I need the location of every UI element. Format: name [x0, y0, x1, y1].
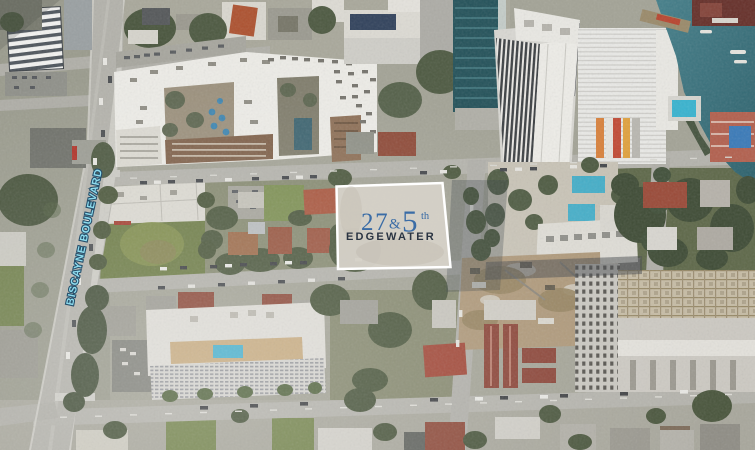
svg-text:th: th	[421, 211, 430, 222]
svg-text:EDGEWATER: EDGEWATER	[346, 231, 436, 243]
